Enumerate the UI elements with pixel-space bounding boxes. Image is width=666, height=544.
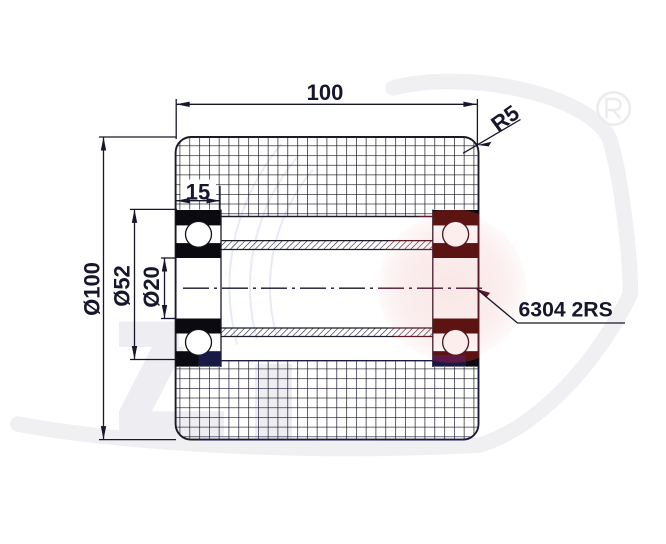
svg-text:6304 2RS: 6304 2RS	[519, 299, 613, 322]
svg-text:15: 15	[186, 180, 210, 205]
svg-text:Ø20: Ø20	[139, 266, 164, 308]
svg-text:Ø52: Ø52	[110, 265, 135, 307]
svg-text:100: 100	[307, 80, 344, 105]
svg-text:Ø100: Ø100	[80, 262, 105, 316]
